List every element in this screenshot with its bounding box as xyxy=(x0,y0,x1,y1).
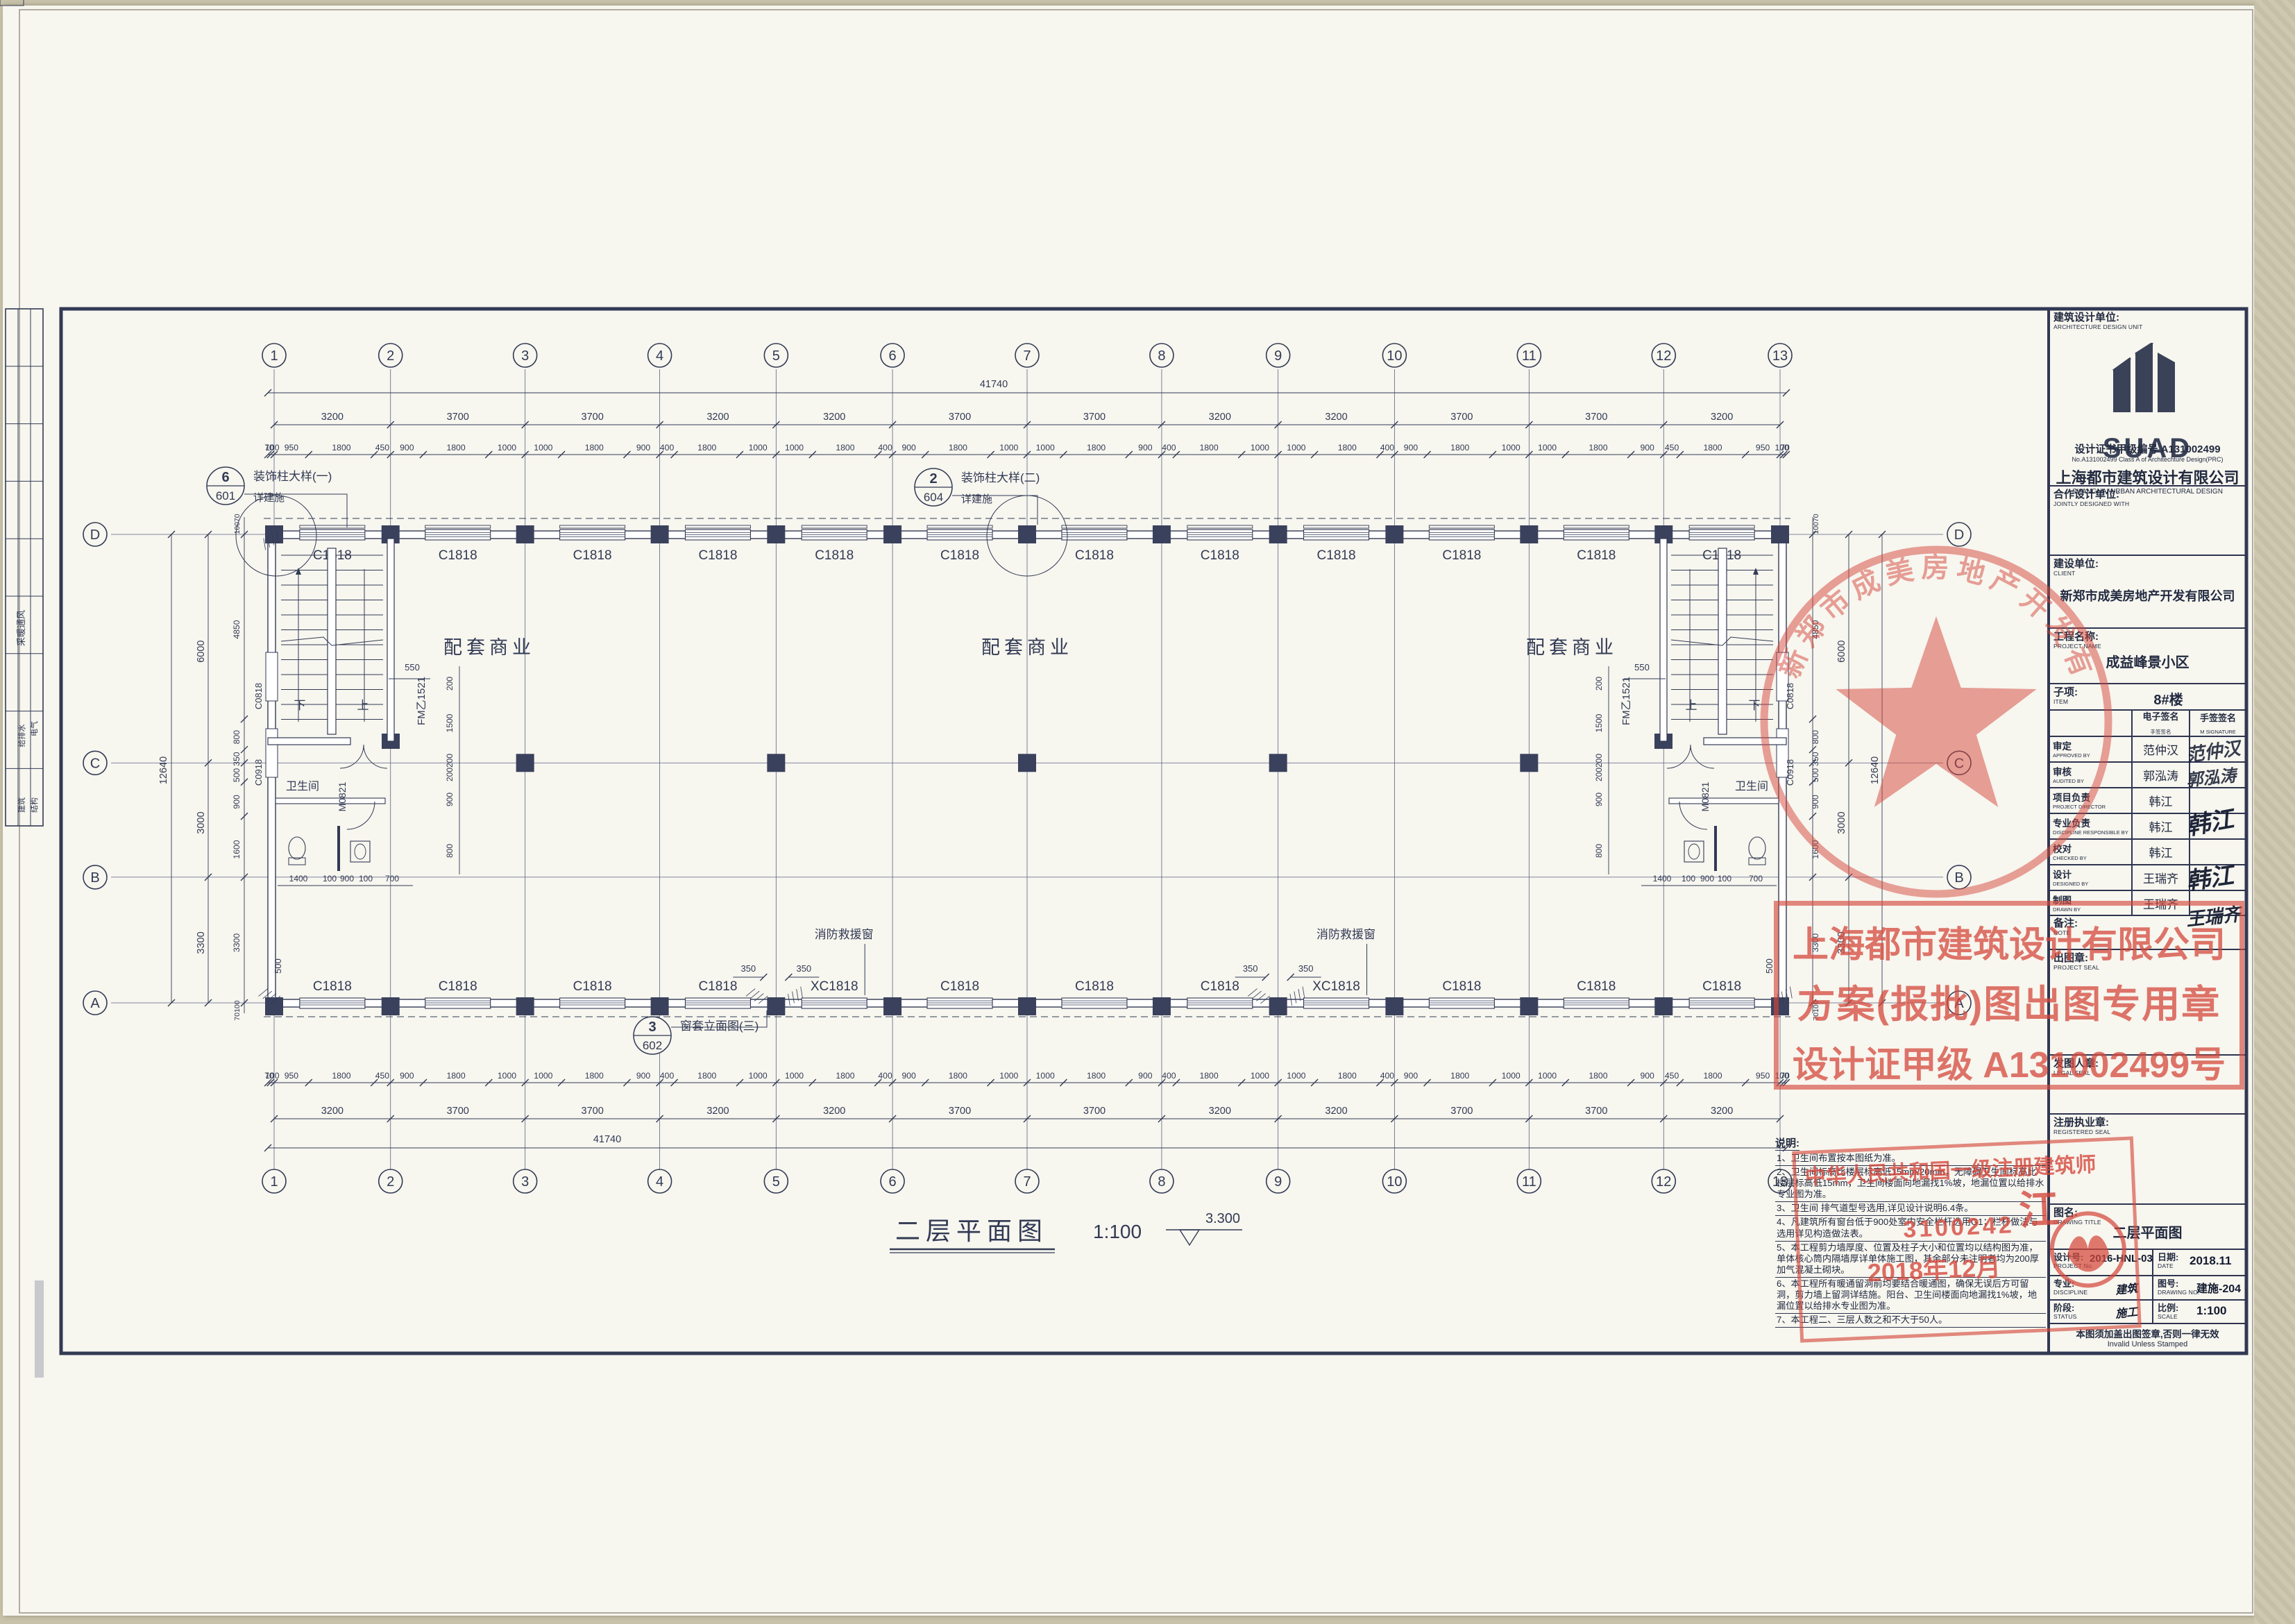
dim-text: 4850 xyxy=(1811,620,1820,638)
legal-seal-label: 发图人章: xyxy=(2049,1056,2246,1069)
dim-text: 900 xyxy=(636,1071,651,1081)
dim-text: 1800 xyxy=(1087,443,1106,452)
column xyxy=(883,525,901,543)
grid-bubble-letter: D xyxy=(90,527,100,543)
grid-bubble-number: 4 xyxy=(656,348,663,364)
dim-text: 1800 xyxy=(836,1071,854,1081)
dim-text: 900 xyxy=(636,443,651,452)
sig-esignature: 韩江 xyxy=(2132,813,2190,839)
dim-text: 400 xyxy=(1380,1071,1395,1081)
dim-text: 200 xyxy=(445,677,455,691)
window-sill xyxy=(1304,525,1369,528)
window-side xyxy=(266,652,278,701)
window-bottom xyxy=(300,998,365,1008)
grid-bubble-number: 1 xyxy=(270,1174,278,1190)
grid-bubble-number: 11 xyxy=(1522,348,1536,364)
sig-esignature: 电子签名手签签名 xyxy=(2132,710,2190,736)
grid-bubble-letter: C xyxy=(1954,756,1964,771)
stair-down-label: 下 xyxy=(294,699,306,712)
dim-text: 1000 xyxy=(1502,1071,1521,1081)
column xyxy=(651,997,669,1015)
dim-text: 400 xyxy=(878,1071,892,1081)
dim-text: 3200 xyxy=(823,1106,845,1117)
dim-text: 3000 xyxy=(196,811,207,834)
grid-bubble-number: 10 xyxy=(1387,348,1402,364)
dim-text: 1800 xyxy=(1200,1071,1219,1081)
dim-text: 200 xyxy=(445,768,455,781)
project-no: 2016-HNL-03 xyxy=(2090,1253,2153,1264)
dim-text: 3000 xyxy=(1836,811,1847,834)
dim-text: 1000 xyxy=(1251,443,1269,452)
dim-text: 1000 xyxy=(1538,1071,1557,1081)
dim-text: 3200 xyxy=(1711,412,1733,423)
dim-text: 1000 xyxy=(534,443,552,452)
dim-text: 3700 xyxy=(1450,1106,1473,1117)
design-unit-label: 建筑设计单位: xyxy=(2049,310,2246,323)
dim-text: 1000 xyxy=(1287,443,1305,452)
window-bottom xyxy=(802,998,867,1008)
dim-text: 1800 xyxy=(1338,443,1357,452)
dim-text: 1800 xyxy=(1450,1071,1469,1081)
column-interior xyxy=(516,754,534,772)
dim-text: 450 xyxy=(1665,1071,1679,1081)
stage-cell: 阶段: STATUS 施工 xyxy=(2049,1300,2153,1323)
window-bottom xyxy=(1564,998,1629,1008)
dim-text: 1400 xyxy=(289,874,308,883)
column xyxy=(1520,997,1538,1015)
grid-bubble-letter: C xyxy=(90,756,100,771)
column xyxy=(382,997,400,1015)
dim-text: 900 xyxy=(901,443,916,452)
sig-role: 校对 CHECKED BY xyxy=(2049,839,2132,865)
core-wall xyxy=(1660,539,1667,741)
grid-bubble-number: 3 xyxy=(521,348,529,364)
dim-text: 200 xyxy=(1594,677,1604,691)
dim-text: 400 xyxy=(1162,1071,1176,1081)
sig-handwritten: 手签签名M SIGNATURE xyxy=(2190,710,2246,736)
suad-logo-icon xyxy=(2092,343,2203,433)
grid-bubble-number: 6 xyxy=(889,1174,897,1190)
window-label-bottom: C1818 xyxy=(573,979,612,994)
column xyxy=(1153,997,1171,1015)
dim-text: 3700 xyxy=(1083,1106,1106,1117)
window-label-side: C0918 xyxy=(1785,759,1795,786)
dim-text: 3700 xyxy=(1585,412,1607,423)
design-unit-label-en: ARCHITECTURE DESIGN UNIT xyxy=(2049,323,2246,330)
project-name-label: 工程名称: xyxy=(2049,629,2246,643)
dim-total-width: 41740 xyxy=(593,1134,621,1145)
dim-text: 3700 xyxy=(447,1106,469,1117)
project-seal-label-en: PROJECT SEAL xyxy=(2049,964,2246,971)
project-name-cell: 工程名称: PROJECT NAME 成益峰景小区 xyxy=(2049,628,2246,684)
dim-text: 3700 xyxy=(582,412,604,423)
sig-role xyxy=(2049,710,2132,736)
discipline-cell: 专业: DISCIPLINE 建筑 xyxy=(2049,1276,2153,1300)
drawing-no-cell: 图号: DRAWING NO. 建施-204 xyxy=(2153,1276,2246,1300)
window-label-top: C1818 xyxy=(1442,548,1481,563)
dim-text: 800 xyxy=(232,730,242,745)
column xyxy=(265,997,283,1015)
client-name: 新郑市成美房地产开发有限公司 xyxy=(2049,586,2246,604)
window-label-side: C0818 xyxy=(1785,683,1795,709)
sig-esignature: 王瑞齐 xyxy=(2132,865,2190,890)
dim-text: 950 xyxy=(285,1071,299,1081)
stair-arrow xyxy=(1753,568,1759,575)
grid-bubble-letter: D xyxy=(1954,527,1964,543)
project-seal-cell: 出图章: PROJECT SEAL xyxy=(2049,949,2246,1055)
dim-text: 500 xyxy=(232,768,242,783)
project-name: 成益峰景小区 xyxy=(2049,651,2246,671)
joint-design-label-en: JOINTLY DESIGNED WITH xyxy=(2049,500,2246,507)
callout-label: 窗套立面图(三) xyxy=(680,1020,759,1033)
column xyxy=(651,525,669,543)
grid-bubble-number: 4 xyxy=(656,1174,663,1190)
dim-text: 1800 xyxy=(332,443,350,452)
grid-bubble-letter: B xyxy=(90,870,99,886)
column-interior xyxy=(1018,754,1036,772)
dim-text: 400 xyxy=(660,443,675,452)
room-label: 配套商业 xyxy=(1526,637,1618,658)
dim-text: 900 xyxy=(1138,443,1153,452)
callout-sheet: 604 xyxy=(924,491,943,504)
window-bottom xyxy=(1187,998,1253,1008)
dim-text: 1800 xyxy=(585,443,604,452)
dim-text: 1000 xyxy=(749,1071,768,1081)
dim-text: 450 xyxy=(1665,443,1679,452)
scanned-drawing-sheet: { "plan": { "col_labels": ["1","2","3","… xyxy=(0,0,2295,1624)
dim-text: 1500 xyxy=(445,713,455,732)
window-label-bottom: C1818 xyxy=(1201,979,1239,994)
dim-text: 950 xyxy=(1756,443,1770,452)
dim-text: 70 xyxy=(1780,1071,1790,1081)
dim-text: 1600 xyxy=(232,840,242,858)
grid-bubble-number: 5 xyxy=(772,1174,780,1190)
plan-rect xyxy=(0,0,24,6)
column xyxy=(1520,525,1538,543)
column xyxy=(883,997,901,1015)
grid-bubble-number: 8 xyxy=(1158,348,1165,364)
dim-text: 70100 xyxy=(1812,1000,1820,1020)
dim-text: 3700 xyxy=(582,1106,604,1117)
sig-role: 审核 AUDITED BY xyxy=(2049,762,2132,788)
plan-geometry xyxy=(259,987,268,999)
dim-text: 400 xyxy=(878,443,892,452)
cert-number-en: No.A131002499 Class A of Architechture D… xyxy=(2049,456,2246,463)
window-label-top: C1818 xyxy=(1317,548,1356,563)
dim-text: 3200 xyxy=(823,412,845,423)
dim-total-height: 12640 xyxy=(158,756,169,784)
dim-total-height: 12640 xyxy=(1870,756,1881,784)
window-sill xyxy=(1187,525,1253,528)
dim-text: 800 xyxy=(1811,730,1820,745)
dim-text: 3300 xyxy=(196,931,207,954)
sig-role: 专业负责 DISCIPLINE RESPONSIBLE BY xyxy=(2049,813,2132,839)
squat-fixture xyxy=(1684,841,1704,862)
dim-text: 3700 xyxy=(1585,1106,1607,1117)
dim-text: 3200 xyxy=(706,412,729,423)
binding-strip xyxy=(6,309,43,826)
grid-bubble-number: 3 xyxy=(521,1174,529,1190)
dim-text: 400 xyxy=(1380,443,1395,452)
scale-cell: 比例: SCALE 1:100 xyxy=(2153,1300,2246,1323)
core-wall xyxy=(1704,738,1786,745)
note-label-en: NOTE xyxy=(2049,929,2246,936)
title-block: 建筑设计单位: ARCHITECTURE DESIGN UNIT SUAD 上海… xyxy=(2049,309,2246,1353)
dim-text: 350 xyxy=(796,963,811,974)
window-sill xyxy=(560,525,625,528)
sig-esignature: 郭泓涛 xyxy=(2132,762,2190,788)
stair-down-label: 下 xyxy=(1749,699,1761,712)
dim-text: 70 xyxy=(1780,443,1790,452)
dim-text: 1800 xyxy=(1703,1071,1722,1081)
window-label-bottom: C1818 xyxy=(439,979,477,994)
dim-text: 1000 xyxy=(1287,1071,1305,1081)
dim-text: 1800 xyxy=(949,1071,967,1081)
dim-text: 450 xyxy=(375,1071,390,1081)
dim-text: 3300 xyxy=(1811,933,1820,952)
wc-fixture xyxy=(289,837,305,859)
dim-text: 1000 xyxy=(1036,1071,1055,1081)
dim-text: 3200 xyxy=(1209,412,1231,423)
dim-text: 3200 xyxy=(321,412,344,423)
joint-design-label: 合作设计单位: xyxy=(2049,487,2246,500)
dim-text: 6000 xyxy=(1836,641,1847,663)
grid-bubble-number: 2 xyxy=(387,1174,394,1190)
dim-total-width: 41740 xyxy=(980,379,1008,390)
note-item: 3、卫生间 排气道型号选用,详见设计说明6.4条。 xyxy=(1775,1202,2046,1216)
registered-seal-label: 注册执业章: xyxy=(2049,1115,2246,1128)
plan-rect xyxy=(0,0,24,6)
toilet-label: 卫生间 xyxy=(286,780,319,793)
binding-discipline: 建筑 xyxy=(17,797,26,813)
dim-text: 1000 xyxy=(1502,443,1521,452)
item-value: 8#楼 xyxy=(2091,688,2246,709)
callout-sheet: 601 xyxy=(216,489,235,502)
grid-bubble-number: 10 xyxy=(1387,1174,1402,1190)
grid-bubble-number: 13 xyxy=(1772,348,1788,364)
column xyxy=(1153,525,1171,543)
sig-role: 审定 APPROVED BY xyxy=(2049,736,2132,762)
window-sill xyxy=(1689,525,1754,528)
plan-geometry xyxy=(1786,987,1795,999)
dim-text: 100 xyxy=(1718,874,1731,883)
squat-fixture xyxy=(355,844,366,859)
door-swing xyxy=(347,802,375,829)
plan-title-scale: 1:100 xyxy=(1093,1221,1142,1242)
dim-text: 900 xyxy=(1700,874,1714,883)
grid-bubble-number: 9 xyxy=(1274,348,1282,364)
column xyxy=(1654,997,1672,1015)
plan-geometry xyxy=(746,987,755,999)
window-sill xyxy=(927,525,992,528)
grid-bubble-letter: A xyxy=(90,996,100,1011)
column xyxy=(516,997,534,1015)
dim-text: 1800 xyxy=(949,443,967,452)
dim-text: 950 xyxy=(1756,1071,1770,1081)
dim-text: 500 xyxy=(1764,958,1775,974)
column xyxy=(1269,997,1287,1015)
callout-label: 装饰柱大样(二) xyxy=(961,471,1040,484)
dim-text: 3700 xyxy=(1450,412,1473,423)
dim-text: 1000 xyxy=(999,1071,1018,1081)
dim-text: 900 xyxy=(400,443,414,452)
dim-text: 3200 xyxy=(1325,412,1347,423)
grid-bubble-number: 7 xyxy=(1023,1174,1031,1190)
dim-text: 500 xyxy=(273,958,283,974)
notes-list: 1、卫生间布置按本图纸为准。2、卫生间标高比楼层标高低15mm/20mm，无障碍… xyxy=(1775,1152,2046,1328)
dim-text: 900 xyxy=(1641,443,1655,452)
room-label: 配套商业 xyxy=(981,637,1073,658)
toilet-wall xyxy=(1669,798,1779,804)
binding-discipline: 电气 xyxy=(29,721,39,736)
dim-text: 3200 xyxy=(706,1106,729,1117)
window-bottom xyxy=(685,998,750,1008)
grid-bubble-number: 9 xyxy=(1274,1174,1282,1190)
note-label: 备注: xyxy=(2049,915,2246,929)
window-label-bottom: XC1818 xyxy=(1312,979,1360,994)
window-bottom xyxy=(1304,998,1369,1008)
sig-esignature: 王瑞齐 xyxy=(2132,890,2190,916)
sig-role: 设计 DESIGNED BY xyxy=(2049,865,2132,890)
drawing-title-label: 图名: xyxy=(2049,1205,2246,1219)
dim-text: 900 xyxy=(445,793,455,806)
dim-text: 1000 xyxy=(1251,1071,1269,1081)
window-label-top: C1818 xyxy=(1075,548,1114,563)
dim-text: 1800 xyxy=(1338,1071,1357,1081)
dim-text: 1800 xyxy=(1703,443,1722,452)
dim-text: 3700 xyxy=(949,412,971,423)
dim-text: 1800 xyxy=(1589,443,1607,452)
dim-text: 200 xyxy=(445,754,455,768)
plan-rect xyxy=(0,0,24,6)
sheet-border xyxy=(19,10,2253,1613)
discipline-value: 建筑 xyxy=(2115,1278,2138,1297)
client-label: 建设单位: xyxy=(2049,556,2246,570)
dim-text: 900 xyxy=(400,1071,414,1081)
column xyxy=(1771,997,1789,1015)
dim-text: 3200 xyxy=(1209,1106,1231,1117)
column-interior xyxy=(1269,754,1287,772)
window-sill xyxy=(802,525,867,528)
window-bottom xyxy=(1429,998,1494,1008)
window-label-top: C1818 xyxy=(698,548,737,563)
note-item: 6、本工程所有暖通留洞前均要结合暖通图，确保无误后方可留洞，剪力墙上留洞详结施。… xyxy=(1775,1278,2046,1314)
sig-esignature: 韩江 xyxy=(2132,839,2190,865)
window-label-top: C1818 xyxy=(815,548,854,563)
dim-text: 1800 xyxy=(447,1071,466,1081)
grid-bubble-letter: A xyxy=(1954,996,1964,1011)
callout-number: 2 xyxy=(929,471,937,487)
grid-bubble-number: 1 xyxy=(270,348,278,364)
handwritten-signature: 韩江 xyxy=(2184,856,2235,897)
window-label-top: C1818 xyxy=(439,548,477,563)
plan-geometry xyxy=(797,987,806,999)
window-sill xyxy=(1062,525,1127,528)
window-side xyxy=(266,729,278,777)
dim-text: 900 xyxy=(340,874,354,883)
dim-text: 400 xyxy=(660,1071,675,1081)
window-label-bottom: C1818 xyxy=(1442,979,1481,994)
window-label-side: C0918 xyxy=(253,759,264,786)
column xyxy=(516,525,534,543)
dim-text: 3700 xyxy=(949,1106,971,1117)
column xyxy=(1385,997,1403,1015)
date-value: 2018.11 xyxy=(2190,1254,2232,1268)
project-name-label-en: PROJECT NAME xyxy=(2049,643,2246,650)
window-bottom xyxy=(1062,998,1127,1008)
dim-text: 1600 xyxy=(1811,840,1820,858)
column-interior xyxy=(767,754,785,772)
plan-rect xyxy=(0,0,24,6)
cert-number: 设计证书甲级编号 A131002499 xyxy=(2049,441,2246,456)
squat-fixture xyxy=(350,841,370,862)
elevation-marker-icon xyxy=(1180,1230,1199,1245)
window-label-top: C1818 xyxy=(1201,548,1239,563)
window-label-bottom: C1818 xyxy=(940,979,979,994)
dim-text: 350 xyxy=(232,752,242,766)
stage-value: 施工 xyxy=(2115,1302,2138,1321)
general-notes: 说明: 1、卫生间布置按本图纸为准。2、卫生间标高比楼层标高低15mm/20mm… xyxy=(1775,1135,2046,1328)
dim-text: 900 xyxy=(1594,793,1604,806)
grid-bubble-number: 5 xyxy=(772,348,780,364)
dim-text: 1000 xyxy=(498,443,516,452)
dim-text: 3700 xyxy=(447,412,469,423)
dim-text: 3200 xyxy=(1711,1106,1733,1117)
client-cell: 建设单位: CLIENT 新郑市成美房地产开发有限公司 xyxy=(2049,555,2246,628)
binding-discipline: 采暖通风 xyxy=(16,610,26,646)
grid-bubble-number: 11 xyxy=(1522,1174,1536,1190)
grid-bubble-letter: B xyxy=(1954,870,1963,886)
dim-text: 1000 xyxy=(534,1071,552,1081)
dim-text: 1800 xyxy=(332,1071,350,1081)
column xyxy=(1771,525,1789,543)
dim-text: 1000 xyxy=(999,443,1018,452)
dim-text: 1800 xyxy=(585,1071,604,1081)
dim-text: 900 xyxy=(1404,1071,1419,1081)
dim-text: 1800 xyxy=(1087,1071,1106,1081)
dim-text: 800 xyxy=(445,844,455,858)
dim-text: 3300 xyxy=(232,933,242,952)
dim-text: 900 xyxy=(901,1071,916,1081)
core-wall xyxy=(268,738,350,745)
column xyxy=(1018,525,1036,543)
dim-text: 1000 xyxy=(749,443,768,452)
fire-door-label: FM乙1521 xyxy=(1620,677,1632,725)
binding-discipline: 给排水 xyxy=(17,725,26,747)
rescue-window-note: 消防救援窗 xyxy=(815,928,874,941)
stair-stringer xyxy=(328,548,336,734)
dim-text: 3200 xyxy=(321,1106,344,1117)
column-interior xyxy=(1520,754,1538,772)
cert-cell: 设计证书甲级编号 A131002499 No.A131002499 Class … xyxy=(2049,437,2246,486)
dim-text: 800 xyxy=(1594,844,1604,858)
dim-text: 900 xyxy=(1138,1071,1153,1081)
dim-text: 3200 xyxy=(1325,1106,1347,1117)
dim-text: 900 xyxy=(1811,795,1820,809)
callout-sheet: 602 xyxy=(643,1039,662,1052)
grid-bubble-number: 8 xyxy=(1158,1174,1165,1190)
dim-text: 1000 xyxy=(1538,443,1557,452)
grid-bubble-number: 6 xyxy=(889,348,897,364)
stair-stringer xyxy=(1718,548,1727,734)
door-swing xyxy=(340,745,364,768)
toilet-door-label: M0821 xyxy=(1700,781,1711,811)
plan-rect xyxy=(0,0,24,6)
window-label-bottom: C1818 xyxy=(1702,979,1741,994)
dim-text: 550 xyxy=(405,662,420,673)
window-label-top: C1818 xyxy=(940,548,979,563)
column xyxy=(1385,525,1403,543)
